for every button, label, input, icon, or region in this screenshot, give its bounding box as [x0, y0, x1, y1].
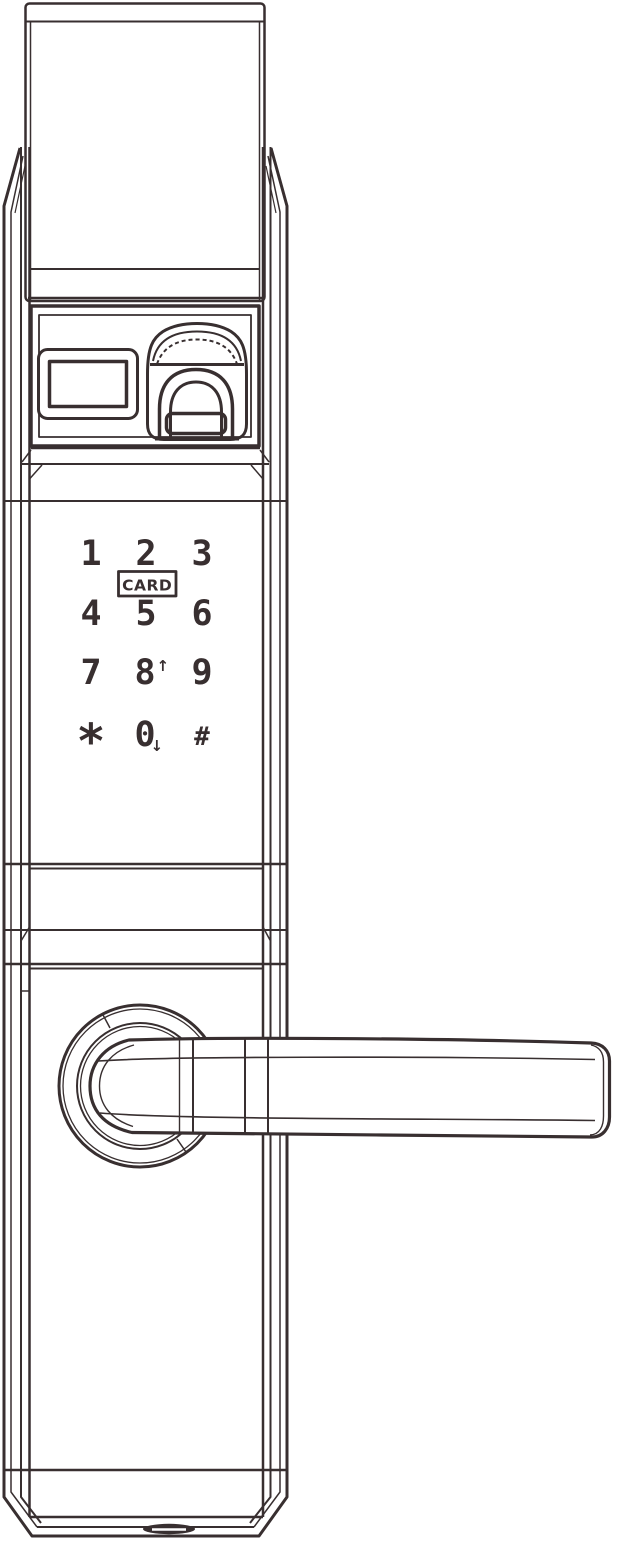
- key-4[interactable]: 4: [80, 594, 101, 634]
- bottom-screw-port: [143, 1524, 195, 1534]
- key-5[interactable]: 5: [135, 594, 156, 634]
- key-6[interactable]: 6: [191, 594, 212, 634]
- smart-lock-drawing: 1 2 3 CARD 4 5 6 7 8 ↑ 9 * 0 ↓ #: [0, 0, 617, 1541]
- svg-text:8: 8: [134, 653, 155, 693]
- display-window: [39, 350, 138, 419]
- key-3[interactable]: 3: [191, 534, 212, 574]
- key-1[interactable]: 1: [80, 534, 101, 574]
- top-mounting-plate: [26, 4, 265, 302]
- svg-text:#: #: [194, 722, 210, 752]
- up-arrow-icon: ↑: [157, 657, 170, 675]
- key-0[interactable]: 0 ↓: [134, 715, 163, 755]
- door-handle[interactable]: [59, 1005, 610, 1167]
- key-2[interactable]: 2: [135, 534, 156, 574]
- handle-lever: [90, 1038, 610, 1137]
- svg-text:1: 1: [80, 534, 101, 574]
- key-8[interactable]: 8 ↑: [134, 653, 169, 693]
- svg-text:5: 5: [135, 594, 156, 634]
- fingerprint-sensor[interactable]: [148, 324, 247, 440]
- key-9[interactable]: 9: [191, 653, 212, 693]
- key-hash[interactable]: #: [194, 722, 210, 752]
- key-7[interactable]: 7: [80, 653, 101, 693]
- svg-text:6: 6: [191, 594, 212, 634]
- keypad: 1 2 3 CARD 4 5 6 7 8 ↑ 9 * 0 ↓ #: [77, 534, 213, 770]
- svg-text:7: 7: [80, 653, 101, 693]
- svg-text:CARD: CARD: [122, 577, 172, 595]
- down-arrow-icon: ↓: [151, 737, 164, 755]
- reader-panel: [31, 306, 259, 446]
- svg-text:2: 2: [135, 534, 156, 574]
- key-star[interactable]: *: [77, 714, 106, 770]
- card-reader-zone[interactable]: CARD: [119, 572, 177, 597]
- svg-text:4: 4: [80, 594, 101, 634]
- svg-text:*: *: [77, 714, 106, 770]
- svg-text:3: 3: [191, 534, 212, 574]
- svg-text:9: 9: [191, 653, 212, 693]
